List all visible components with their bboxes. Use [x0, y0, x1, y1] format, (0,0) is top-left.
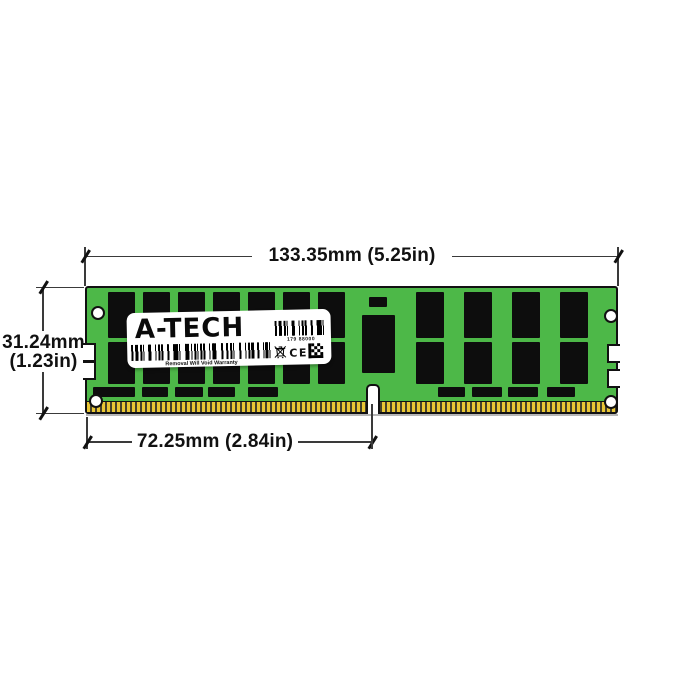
register-chip — [362, 315, 395, 373]
width-dimension-label: 133.35mm (5.25in) — [250, 246, 454, 265]
side-notch — [83, 343, 96, 362]
memory-chip — [416, 342, 444, 384]
mounting-hole — [89, 394, 103, 408]
ce-mark: CE — [289, 346, 308, 359]
memory-chip — [464, 342, 492, 384]
serial-number: 179 88000 — [273, 336, 329, 343]
component-chip — [438, 387, 465, 397]
extension-line-bottom-right — [371, 404, 373, 449]
component-chip — [208, 387, 235, 397]
contact-dimension-line-right — [298, 441, 372, 443]
product-label: A-TECH 179 88000 Removal Will Void Warra… — [126, 309, 331, 368]
component-chip — [472, 387, 502, 397]
side-notch — [607, 369, 620, 388]
component-chip — [142, 387, 168, 397]
side-notch — [83, 361, 96, 380]
memory-chip — [560, 292, 588, 338]
memory-chip — [416, 292, 444, 338]
height-in: (1.23in) — [9, 351, 77, 372]
key-notch — [366, 384, 380, 414]
brand-logo: A-TECH — [134, 312, 244, 345]
component-chip — [175, 387, 203, 397]
main-barcode — [131, 342, 271, 361]
height-mm: 31.24mm — [2, 332, 85, 353]
memory-chip — [512, 292, 540, 338]
qr-code-icon — [308, 343, 323, 358]
width-dimension-line-right — [452, 256, 618, 258]
component-chip — [508, 387, 538, 397]
module-shadow — [86, 414, 618, 416]
mounting-hole — [604, 309, 618, 323]
weee-icon — [273, 344, 287, 360]
mounting-hole — [604, 395, 618, 409]
contact-dimension-label: 72.25mm (2.84in) — [122, 432, 308, 451]
pin-row — [87, 401, 616, 412]
spd-component — [369, 297, 387, 307]
height-dimension-label: 31.24mm (1.23in) — [1, 333, 86, 371]
height-dimension-line-top — [42, 287, 44, 331]
height-dimension-line-bottom — [42, 372, 44, 413]
side-notch — [607, 344, 620, 363]
serial-barcode — [275, 320, 328, 336]
mounting-hole — [91, 306, 105, 320]
component-chip — [547, 387, 575, 397]
product-dimension-diagram: { "dimension_annotations": { "module_wid… — [0, 0, 700, 700]
width-dimension-line-left — [85, 256, 252, 258]
memory-chip — [560, 342, 588, 384]
memory-chip — [512, 342, 540, 384]
component-chip — [248, 387, 278, 397]
memory-chip — [464, 292, 492, 338]
